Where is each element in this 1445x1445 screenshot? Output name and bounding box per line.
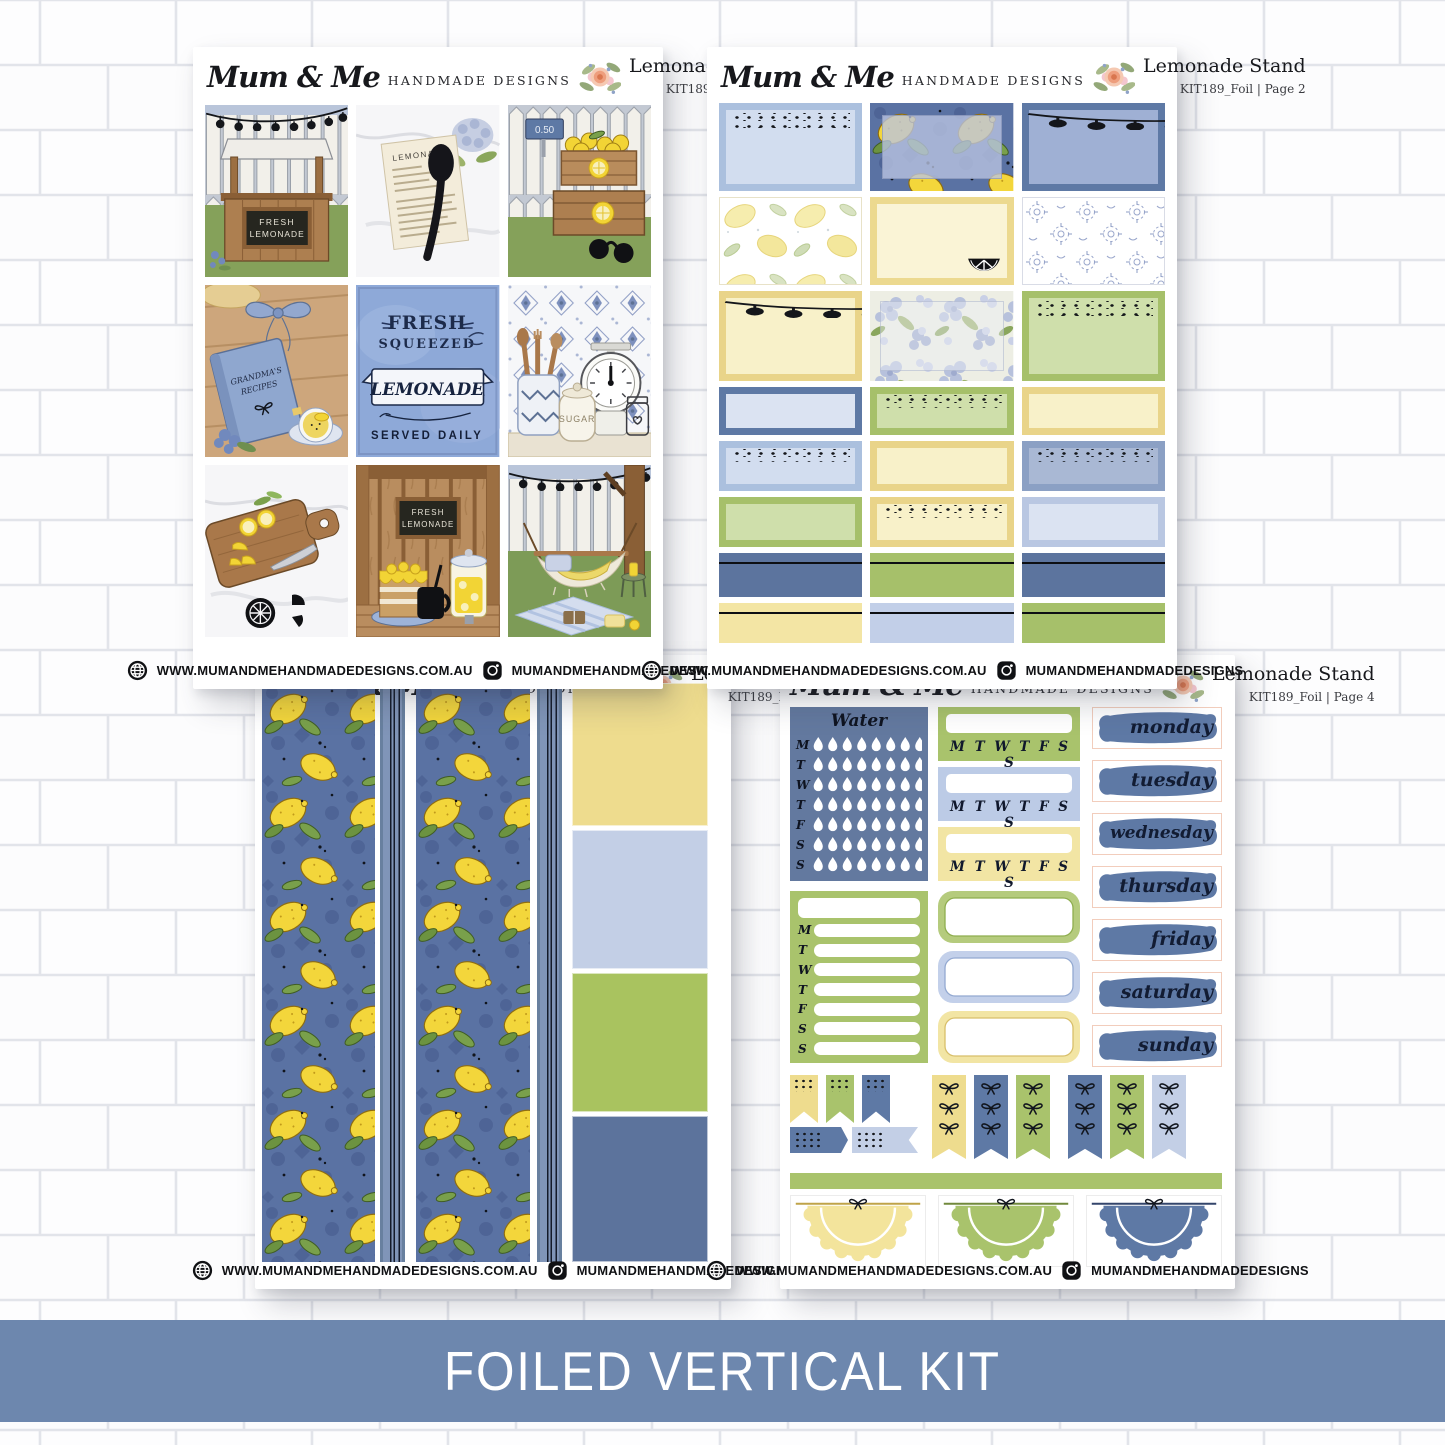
website-url: WWW.MUMANDMEHANDMADEDESIGNS.COM.AU <box>736 1263 1052 1278</box>
full-box-lemon-pattern <box>870 103 1013 191</box>
day-cover-friday: friday <box>1092 919 1222 961</box>
side-flag-dark-blue <box>790 1127 848 1153</box>
website-url: WWW.MUMANDMEHANDMADEDESIGNS.COM.AU <box>671 663 987 678</box>
half-box-yellow <box>870 441 1013 491</box>
bow-page-flag-green <box>1110 1075 1144 1159</box>
sheet-header: Mum & Me HANDMADE DESIGNS Lemonade Stand… <box>207 53 649 101</box>
website-url: WWW.MUMANDMEHANDMADEDESIGNS.COM.AU <box>222 1263 538 1278</box>
half-box-blue <box>719 387 862 435</box>
washi-strip-blue-lines <box>537 683 562 1262</box>
sheet-footer: WWW.MUMANDMEHANDMADEDESIGNS.COM.AU MUMAN… <box>780 1260 1235 1281</box>
habit-tracker-yellow: M T W T F S S <box>938 827 1080 881</box>
day-cover-monday: monday <box>1092 707 1222 749</box>
doily-sticker-yellow <box>790 1195 926 1267</box>
sheet-footer: WWW.MUMANDMEHANDMADEDESIGNS.COM.AU MUMAN… <box>193 660 663 681</box>
dotted-box-light-blue <box>572 830 708 969</box>
string-lights-icon <box>1026 106 1165 130</box>
half-box-dark-blue-dots <box>1022 441 1165 491</box>
sticker-sheet-page4: Mum & Me HANDMADE DESIGNS Lemonade Stand… <box>780 655 1235 1289</box>
poster-squeezed-text: SQUEEZED <box>379 337 476 352</box>
water-tracker-sticker: Water M T W T F S S <box>790 707 928 881</box>
instagram-handle: MUMANDMEHANDMADEDESIGNS <box>1091 1263 1309 1278</box>
poster-served-daily-text: SERVED DAILY <box>371 430 483 442</box>
half-box-green-dots <box>870 387 1013 435</box>
pennant-flag-green <box>826 1075 854 1123</box>
week-letter: T <box>796 758 811 772</box>
full-box-string-lights <box>1022 103 1165 191</box>
floral-ornament-icon <box>1093 57 1135 97</box>
header-strip-blue <box>719 553 862 597</box>
day-cover-saturday: saturday <box>1092 972 1222 1014</box>
header-strip-light-blue <box>870 603 1013 643</box>
sticker-sheet-page3: Mum & Me HANDMADE DESIGNS Lemonade Stand… <box>255 655 731 1289</box>
washi-strip-green-dots <box>790 1173 1222 1189</box>
website-globe-icon <box>641 660 662 681</box>
sheet-header: Mum & Me HANDMADE DESIGNS Lemonade Stand… <box>721 53 1163 101</box>
day-cover-thursday: thursday <box>1092 866 1222 908</box>
half-box-green <box>719 497 862 547</box>
water-drops-row <box>811 735 922 755</box>
day-label: tuesday <box>1131 769 1213 791</box>
week-letter: W <box>796 778 811 792</box>
scallop-box-green <box>938 891 1080 943</box>
instagram-icon <box>1061 1260 1082 1281</box>
price-tag-text: 0.50 <box>535 125 555 136</box>
sugar-jar-label: SUGAR <box>559 414 596 424</box>
chalkboard-line1: FRESH <box>412 508 445 517</box>
half-box-yellow-dots <box>870 497 1013 547</box>
half-box-blue-dots <box>719 441 862 491</box>
day-label: friday <box>1151 928 1213 950</box>
full-box-green-dots <box>1022 291 1165 381</box>
dotted-box-green <box>572 973 708 1112</box>
day-label: saturday <box>1121 981 1213 1003</box>
header-strip-blue <box>1022 553 1165 597</box>
full-box-fresh-squeezed-poster: FRESH SQUEEZED LEMONADE SERVED DAILY <box>356 285 499 457</box>
day-label: sunday <box>1138 1034 1213 1056</box>
full-box-hammock <box>508 465 651 637</box>
full-box-yellow-lights <box>719 291 862 381</box>
bow-page-flag-yellow <box>932 1075 966 1159</box>
full-box-recipe-spoon: LEMONADE <box>356 105 499 277</box>
poster-fresh-text: FRESH <box>388 312 467 334</box>
product-banner: FOILED VERTICAL KIT <box>0 1320 1445 1422</box>
week-letter: T <box>796 798 811 812</box>
week-letter: S <box>796 838 811 852</box>
washi-strip-lemon <box>262 683 375 1262</box>
string-lights-icon <box>723 294 862 318</box>
habit-tracker-green: M T W T F S S <box>938 707 1080 761</box>
full-box-blue-dots <box>719 103 862 191</box>
week-letter: M <box>796 738 811 752</box>
website-globe-icon <box>127 660 148 681</box>
water-tracker-title: Water <box>796 711 922 735</box>
full-box-hydrangea <box>870 291 1013 381</box>
website-url: WWW.MUMANDMEHANDMADEDESIGNS.COM.AU <box>157 663 473 678</box>
full-box-yellow-lime <box>870 197 1013 285</box>
day-cover-tuesday: tuesday <box>1092 760 1222 802</box>
kit-page-label: KIT189_Foil | Page 2 <box>1180 82 1306 96</box>
poster-lemonade-banner-text: LEMONADE <box>370 379 486 399</box>
day-cover-sunday: sunday <box>1092 1025 1222 1067</box>
chalkboard-line2: LEMONADE <box>402 520 454 529</box>
instagram-icon <box>482 660 503 681</box>
day-cover-wednesday: wednesday <box>1092 813 1222 855</box>
weekly-list-sticker: M T W T F S S <box>790 891 928 1063</box>
week-letter: S <box>796 858 811 872</box>
full-box-stand-cake: FRESH LEMONADE <box>356 465 499 637</box>
kit-heading: Lemonade Stand KIT189_Foil | Page 2 <box>1143 54 1306 99</box>
list-title-bar <box>798 898 920 918</box>
bow-page-flag-light-blue <box>1152 1075 1186 1159</box>
brand-logo-script: Mum & Me <box>207 60 380 94</box>
instagram-icon <box>547 1260 568 1281</box>
sheet-footer: WWW.MUMANDMEHANDMADEDESIGNS.COM.AU MUMAN… <box>707 660 1177 681</box>
pennant-flag-blue <box>862 1075 890 1123</box>
day-label: monday <box>1130 716 1213 738</box>
chalkboard-line2: LEMONADE <box>250 229 305 239</box>
full-box-lemon-crates: 0.50 <box>508 105 651 277</box>
half-box-pale-blue <box>1022 497 1165 547</box>
full-box-white-lemons <box>719 197 862 285</box>
bow-page-flag-green <box>1016 1075 1050 1159</box>
header-strip-green <box>1022 603 1165 643</box>
full-box-kitchen-scale: SUGAR <box>508 285 651 457</box>
website-globe-icon <box>706 1260 727 1281</box>
sheet-footer: WWW.MUMANDMEHANDMADEDESIGNS.COM.AU MUMAN… <box>255 1260 731 1281</box>
full-box-cutting-board <box>205 465 348 637</box>
doily-sticker-blue <box>1086 1195 1222 1267</box>
chalkboard-line1: FRESH <box>259 217 295 227</box>
washi-strip-lemon <box>416 683 530 1262</box>
week-letter: F <box>796 818 811 832</box>
pennant-flag-yellow <box>790 1075 818 1123</box>
kit-title: Lemonade Stand <box>1143 54 1306 79</box>
header-strip-green <box>870 553 1013 597</box>
side-flag-light-blue <box>852 1127 918 1153</box>
bow-page-flag-blue <box>1068 1075 1102 1159</box>
washi-strip-blue-lines <box>380 683 405 1262</box>
instagram-handle: MUMANDMEHANDMADEDESIGNS <box>1026 663 1244 678</box>
dotted-box-yellow <box>572 683 708 826</box>
bow-page-flag-blue <box>974 1075 1008 1159</box>
floral-ornament-icon <box>579 57 621 97</box>
full-box-floral-sketch <box>1022 197 1165 285</box>
habit-tracker-blue: M T W T F S S <box>938 767 1080 821</box>
website-globe-icon <box>192 1260 213 1281</box>
instagram-icon <box>996 660 1017 681</box>
full-box-lemonade-stand: FRESH LEMONADE <box>205 105 348 277</box>
lime-slice-icon <box>966 254 1002 276</box>
doily-sticker-green <box>938 1195 1074 1267</box>
banner-label: FOILED VERTICAL KIT <box>444 1339 1001 1403</box>
sticker-sheet-page1: Mum & Me HANDMADE DESIGNS Lemonade Stand… <box>193 47 663 689</box>
half-box-yellow <box>1022 387 1165 435</box>
day-label: wednesday <box>1110 823 1213 843</box>
scallop-box-blue <box>938 951 1080 1003</box>
dotted-box-dark-blue <box>572 1116 708 1262</box>
kit-page-label: KIT189_Foil | Page 4 <box>1249 690 1375 704</box>
scallop-box-yellow <box>938 1011 1080 1063</box>
brand-logo-caps: HANDMADE DESIGNS <box>902 73 1085 88</box>
brand-logo-caps: HANDMADE DESIGNS <box>388 73 571 88</box>
day-label: thursday <box>1119 875 1213 897</box>
brand-logo-script: Mum & Me <box>721 60 894 94</box>
full-box-grandmas-recipes: GRANDMA'S RECIPES <box>205 285 348 457</box>
sticker-sheet-page2: Mum & Me HANDMADE DESIGNS Lemonade Stand… <box>707 47 1177 689</box>
header-strip-yellow <box>719 603 862 643</box>
